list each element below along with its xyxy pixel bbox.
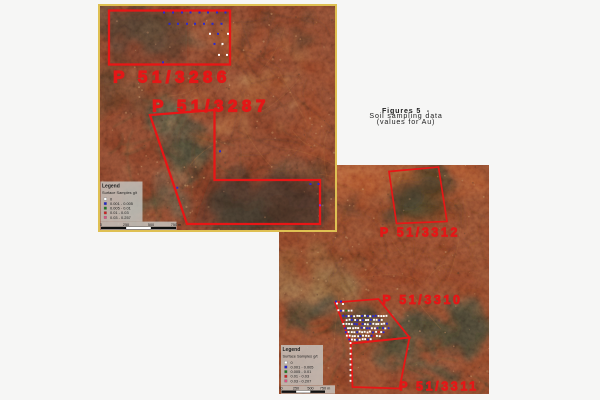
svg-text:Surface Samples g/t: Surface Samples g/t bbox=[283, 353, 319, 358]
svg-text:250: 250 bbox=[293, 387, 299, 391]
svg-text:750 m: 750 m bbox=[320, 387, 331, 391]
svg-text:P 51/3286: P 51/3286 bbox=[113, 68, 231, 87]
svg-text:Surface Samples g/t: Surface Samples g/t bbox=[102, 190, 138, 195]
svg-text:750 m: 750 m bbox=[170, 223, 181, 227]
svg-text:500: 500 bbox=[147, 223, 153, 227]
svg-text:0.03 - 0.207: 0.03 - 0.207 bbox=[291, 378, 312, 383]
svg-text:P 51/3310: P 51/3310 bbox=[382, 293, 462, 307]
svg-text:250: 250 bbox=[122, 223, 128, 227]
svg-text:0: 0 bbox=[280, 387, 282, 391]
svg-text:0.03 - 0.257: 0.03 - 0.257 bbox=[110, 215, 131, 220]
svg-text:Legend: Legend bbox=[102, 184, 120, 190]
svg-text:P 51/3312: P 51/3312 bbox=[380, 226, 460, 240]
svg-text:P 51/3287: P 51/3287 bbox=[152, 97, 270, 116]
svg-text:P 51/3311: P 51/3311 bbox=[399, 380, 478, 394]
svg-text:0: 0 bbox=[100, 223, 102, 227]
svg-text:Legend: Legend bbox=[283, 347, 301, 353]
svg-text:500: 500 bbox=[307, 387, 313, 391]
